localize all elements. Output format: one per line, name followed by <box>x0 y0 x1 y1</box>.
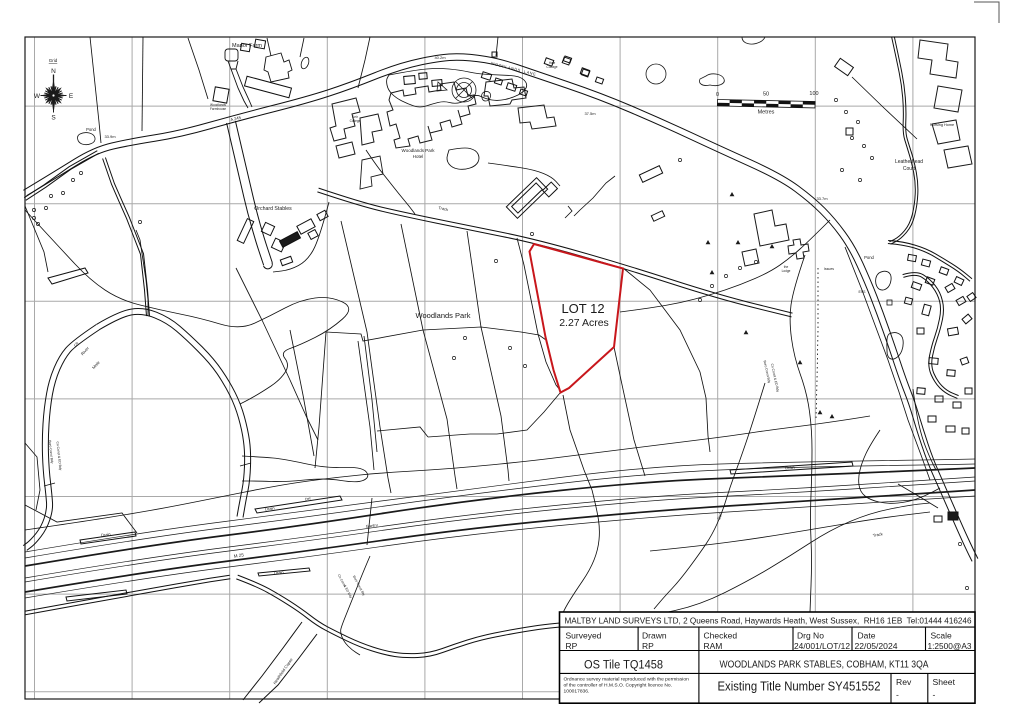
svg-text:Orchard Stables: Orchard Stables <box>254 206 292 212</box>
svg-text:50: 50 <box>763 92 769 98</box>
svg-text:Pond: Pond <box>86 127 96 132</box>
svg-text:Track: Track <box>872 531 883 538</box>
svg-text:2.27 Acres: 2.27 Acres <box>559 317 609 329</box>
svg-text:Grid: Grid <box>49 58 58 63</box>
svg-text:RP: RP <box>566 641 578 651</box>
svg-text:33.9m: 33.9m <box>104 134 116 139</box>
svg-text:OS Tile TQ1458: OS Tile TQ1458 <box>584 660 663 672</box>
svg-text:River: River <box>80 345 91 356</box>
svg-text:M 25: M 25 <box>233 552 244 558</box>
svg-text:Drain: Drain <box>785 465 795 470</box>
svg-text:Court: Court <box>903 166 916 172</box>
svg-text:Existing Title Number SY451552: Existing Title Number SY451552 <box>718 680 881 694</box>
svg-text:Checked: Checked <box>704 630 738 640</box>
svg-text:22/05/2024: 22/05/2024 <box>855 641 898 651</box>
svg-text:Pond: Pond <box>864 255 874 260</box>
svg-text:LOT 12: LOT 12 <box>561 301 604 316</box>
svg-text:College: College <box>350 119 361 123</box>
svg-text:-: - <box>933 690 936 700</box>
svg-text:1:2500@A3: 1:2500@A3 <box>928 641 972 651</box>
svg-text:Date: Date <box>858 630 876 640</box>
svg-text:Boro Const Bty: Boro Const Bty <box>352 575 366 597</box>
svg-text:WOODLANDS PARK STABLES, COBHAM: WOODLANDS PARK STABLES, COBHAM, KT11 3QA <box>720 660 929 671</box>
svg-text:Lodge: Lodge <box>782 269 791 273</box>
svg-text:Nursing Home: Nursing Home <box>930 123 954 127</box>
svg-text:Surveyed: Surveyed <box>566 630 602 640</box>
svg-text:& ED Bdy: & ED Bdy <box>343 584 353 599</box>
svg-text:Drain: Drain <box>101 531 111 537</box>
svg-text:-: - <box>896 690 899 700</box>
svg-text:Leatherhead: Leatherhead <box>895 159 923 165</box>
svg-text:Woodlands Park: Woodlands Park <box>402 148 436 153</box>
svg-text:Mole: Mole <box>91 359 101 370</box>
svg-text:Sheet: Sheet <box>933 677 956 687</box>
svg-text:40.2m: 40.2m <box>434 55 446 60</box>
svg-text:33.7m: 33.7m <box>816 196 828 201</box>
svg-text:24/001/LOT/12: 24/001/LOT/12 <box>794 641 850 651</box>
svg-text:Co Const & ED Bdy: Co Const & ED Bdy <box>770 363 780 392</box>
svg-text:E: E <box>69 93 74 100</box>
svg-text:of the controller of H.M.S.O.: of the controller of H.M.S.O. Copyright … <box>564 683 672 689</box>
svg-text:ESS: ESS <box>858 290 866 294</box>
svg-text:Farmhouse: Farmhouse <box>210 107 226 111</box>
svg-text:Woodlands Park: Woodlands Park <box>416 311 471 320</box>
svg-text:Ordnance survey material repro: Ordnance survey material reproduced with… <box>564 677 690 683</box>
svg-text:W: W <box>34 93 41 100</box>
svg-text:Def: Def <box>716 512 723 520</box>
svg-text:Manor Farm: Manor Farm <box>232 43 262 49</box>
svg-text:Metres: Metres <box>758 110 775 116</box>
svg-text:Scale: Scale <box>931 630 953 640</box>
svg-text:RAM: RAM <box>704 641 723 651</box>
svg-text:RP: RP <box>642 641 654 651</box>
svg-text:100017836.: 100017836. <box>564 689 590 695</box>
svg-text:Hotel: Hotel <box>413 154 424 159</box>
svg-text:Rev: Rev <box>896 677 912 687</box>
svg-text:Drawn: Drawn <box>642 630 667 640</box>
svg-text:Co Const & ED Bdy: Co Const & ED Bdy <box>55 441 62 471</box>
svg-text:S: S <box>51 115 56 122</box>
svg-text:Drg No: Drg No <box>797 630 824 640</box>
svg-text:CR: CR <box>73 341 80 348</box>
svg-text:Drain: Drain <box>274 570 284 576</box>
svg-text:0: 0 <box>716 92 719 98</box>
svg-text:Issues: Issues <box>824 267 834 271</box>
svg-text:N: N <box>51 68 56 75</box>
svg-text:Gantry: Gantry <box>365 522 378 529</box>
svg-text:37.5m: 37.5m <box>584 111 596 116</box>
svg-text:100: 100 <box>809 91 818 97</box>
svg-text:Track: Track <box>438 205 449 212</box>
svg-text:Cottage: Cottage <box>546 65 557 69</box>
svg-text:MALTBY LAND SURVEYS LTD, 2 Que: MALTBY LAND SURVEYS LTD, 2 Queens Road, … <box>565 616 972 626</box>
svg-text:Heathfield Copse: Heathfield Copse <box>272 657 294 686</box>
